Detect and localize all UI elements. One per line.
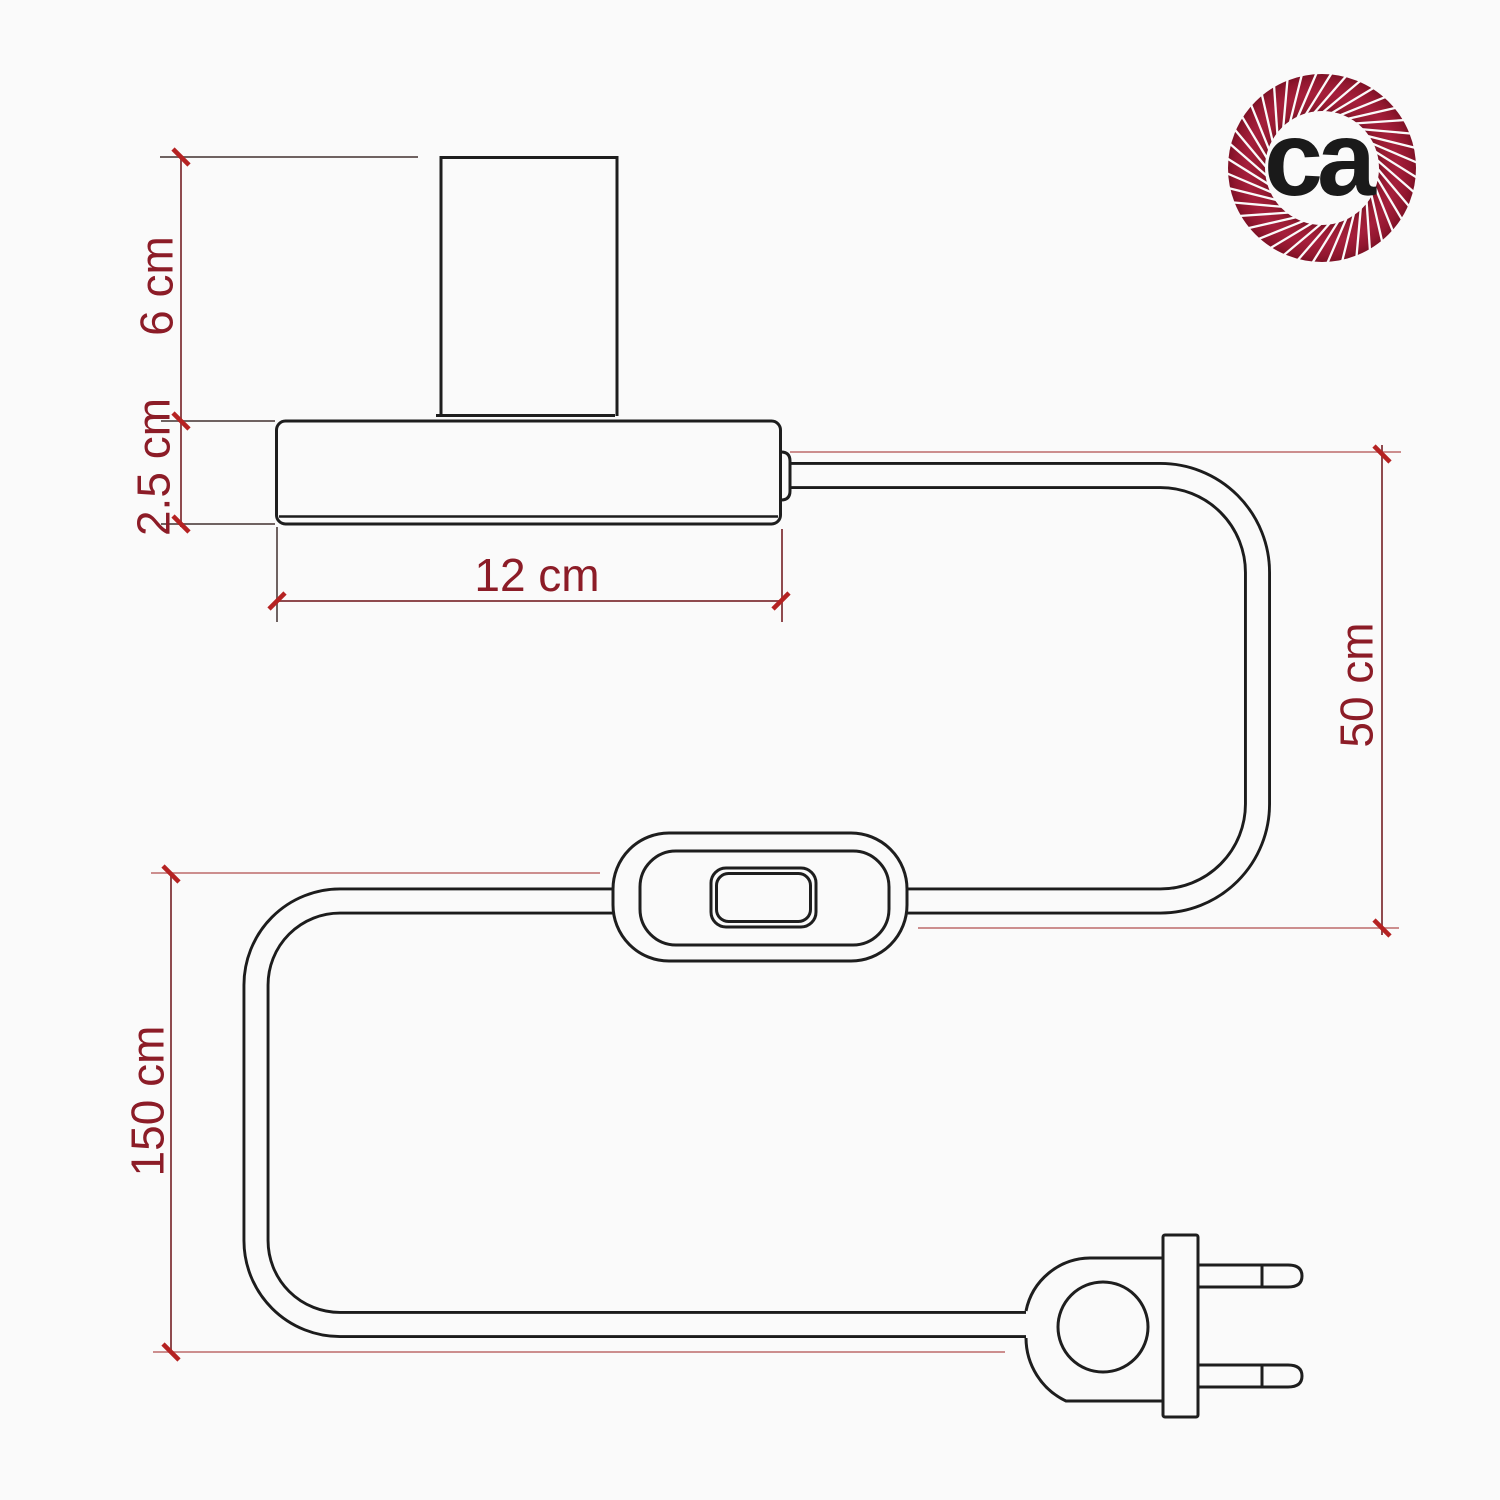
svg-text:6 cm: 6 cm	[131, 236, 183, 336]
svg-text:ca: ca	[1264, 100, 1377, 218]
svg-text:12 cm: 12 cm	[474, 549, 599, 601]
svg-text:50 cm: 50 cm	[1331, 622, 1383, 747]
svg-text:150 cm: 150 cm	[122, 1026, 174, 1177]
svg-text:2.5 cm: 2.5 cm	[128, 398, 180, 536]
